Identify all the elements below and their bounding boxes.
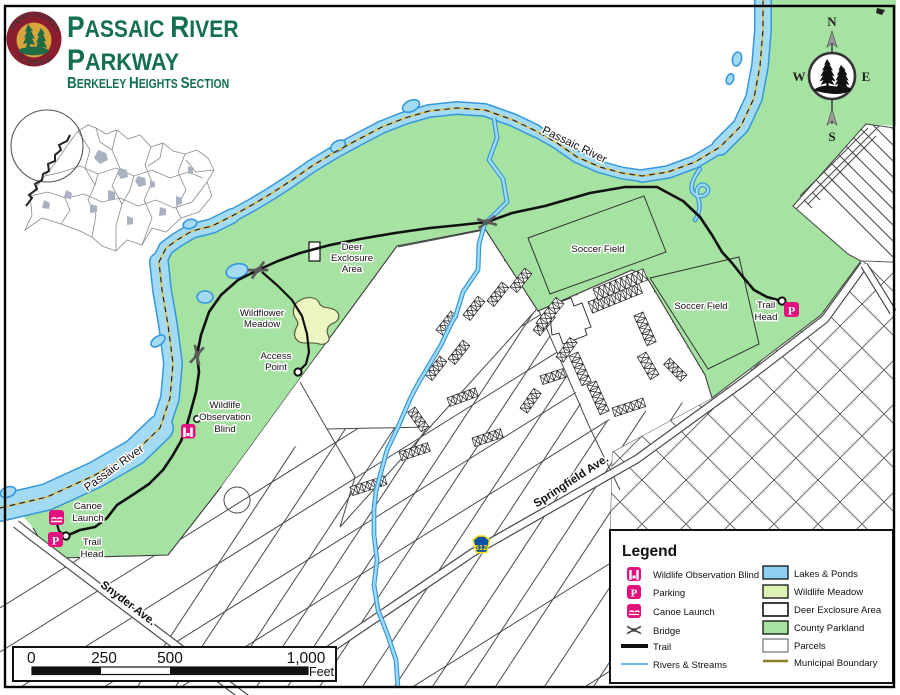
svg-text:P: P [631,588,638,600]
svg-text:Wildlife Observation Blind: Wildlife Observation Blind [653,570,759,581]
svg-text:Bridge: Bridge [653,626,680,637]
svg-text:500: 500 [157,650,183,667]
svg-text:Rivers & Streams: Rivers & Streams [653,660,727,671]
svg-text:S: S [828,129,835,144]
svg-text:Feet: Feet [309,665,335,679]
svg-text:Deer: Deer [342,242,364,253]
svg-text:Deer Exclosure Area: Deer Exclosure Area [794,605,882,616]
svg-text:Exclosure: Exclosure [331,253,373,264]
svg-text:E: E [862,69,871,84]
svg-text:Blind: Blind [214,424,235,435]
svg-text:Point: Point [265,362,287,373]
svg-text:Legend: Legend [622,543,677,560]
svg-text:Access: Access [261,351,292,362]
svg-text:County Parkland: County Parkland [794,623,864,634]
svg-text:Observation: Observation [199,412,251,423]
svg-text:250: 250 [91,650,117,667]
svg-text:Wildlife: Wildlife [210,400,241,411]
svg-text:W: W [793,69,806,84]
svg-text:Municipal Boundary: Municipal Boundary [794,658,878,669]
svg-text:P: P [788,304,795,318]
svg-text:Head: Head [81,549,104,560]
svg-text:Wildflower: Wildflower [240,308,285,319]
svg-text:Soccer Field: Soccer Field [571,244,624,255]
svg-text:Head: Head [755,312,778,323]
svg-text:Trail: Trail [757,300,775,311]
svg-text:Trail: Trail [83,537,101,548]
svg-text:Lakes & Ponds: Lakes & Ponds [794,569,858,580]
svg-text:Launch: Launch [72,513,103,524]
svg-text:R: R [33,60,38,67]
svg-text:Soccer Field: Soccer Field [674,301,727,312]
svg-text:Parking: Parking [653,588,685,599]
svg-text:Canoe Launch: Canoe Launch [653,607,715,618]
svg-text:Area: Area [342,264,363,275]
svg-text:P: P [52,534,59,548]
svg-text:PARKWAY: PARKWAY [67,44,179,78]
svg-text:BERKELEY HEIGHTS SECTION: BERKELEY HEIGHTS SECTION [67,75,229,92]
svg-text:512: 512 [475,543,488,552]
svg-text:N: N [827,14,837,29]
svg-text:0: 0 [27,650,36,667]
svg-text:Wildlife Meadow: Wildlife Meadow [794,587,863,598]
svg-text:Canoe: Canoe [74,501,102,512]
svg-text:Parcels: Parcels [794,641,826,652]
svg-text:Trail: Trail [653,642,671,653]
svg-text:Meadow: Meadow [244,319,280,330]
